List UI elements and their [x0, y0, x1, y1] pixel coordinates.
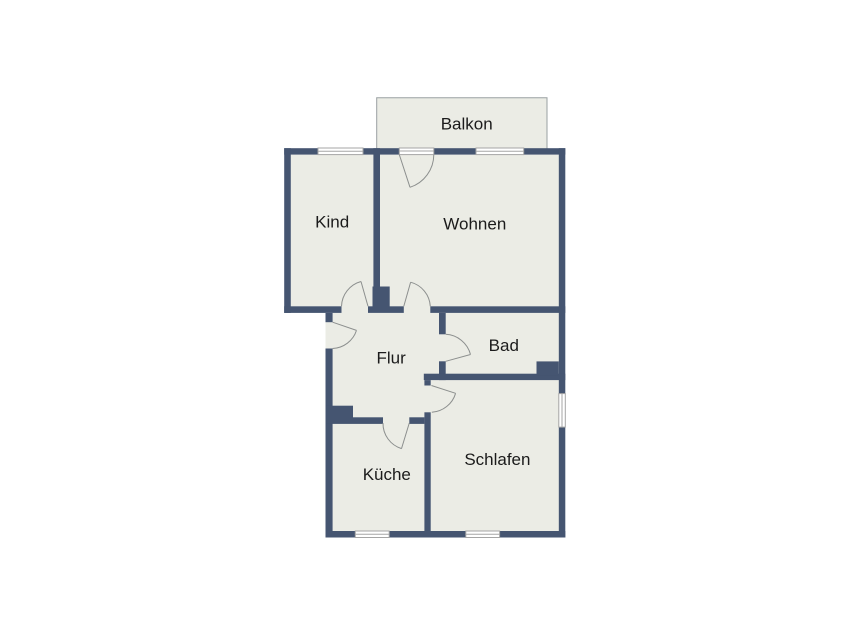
svg-text:Wohnen: Wohnen — [443, 214, 506, 233]
svg-text:Schlafen: Schlafen — [464, 450, 530, 469]
svg-text:Kind: Kind — [315, 212, 349, 231]
svg-text:Flur: Flur — [376, 349, 406, 368]
svg-text:Bad: Bad — [489, 336, 519, 355]
svg-text:Balkon: Balkon — [441, 114, 493, 133]
svg-text:Küche: Küche — [363, 465, 411, 484]
